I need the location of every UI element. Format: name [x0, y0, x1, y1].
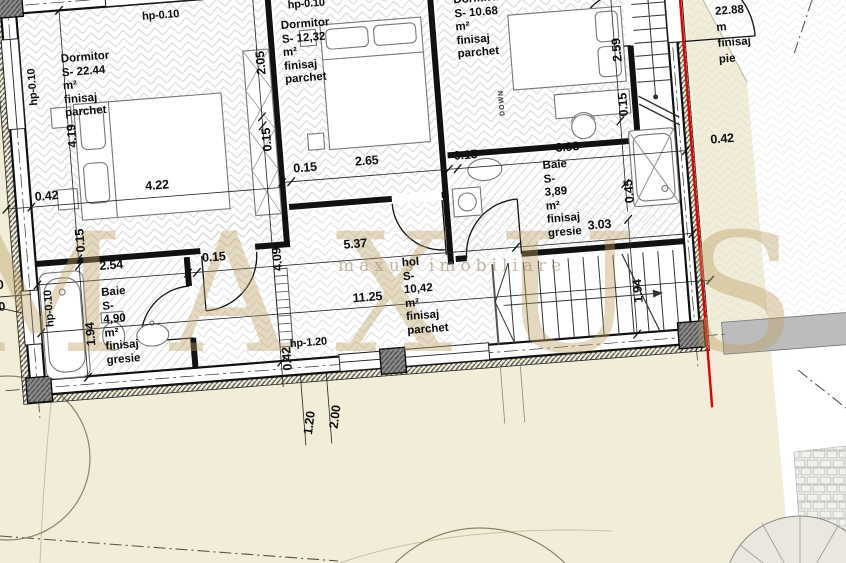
- dim-015-e: 0.15: [615, 92, 631, 117]
- room-label-dormitor-1: DormitorS- 22.44 m²finisaj parchet: [60, 50, 114, 121]
- dim-419: 4.19: [64, 124, 80, 149]
- floor-plan-canvas: MAXUS maxus imobiliare 2.00 UF1 1.700 2.…: [0, 0, 846, 563]
- dim-409: 4.09: [269, 247, 285, 272]
- dim-042-bottom: 0.42: [279, 347, 295, 372]
- room-label-hol: holS- 10,42 m²finisaj parchet: [401, 254, 449, 338]
- dim-015-f: 0.15: [72, 228, 88, 253]
- dim-015-c: 0.15: [198, 249, 229, 265]
- room-label-dormitor-2: DormitorS- 12,32 m²finisaj parchet: [280, 16, 334, 87]
- room-label-baie-2: BaieS- 4,90 m²finisaj gresie: [101, 284, 141, 367]
- dim-015-a: 0.15: [290, 159, 321, 175]
- dim-015-b: 0.15: [450, 147, 481, 163]
- floor-plan-drawing: [0, 0, 846, 497]
- dim-194-left: 1.94: [83, 322, 99, 347]
- dim-194-right: 1.94: [630, 279, 646, 304]
- dim-205: 2.05: [253, 51, 269, 76]
- dim-045: 0.45: [621, 179, 637, 204]
- dim-259: 2.59: [609, 38, 625, 63]
- dim-015-d: 0.15: [259, 127, 275, 152]
- room-label-dormitor-3: DormitorS- 10.68 m²finisaj parchet: [453, 0, 507, 62]
